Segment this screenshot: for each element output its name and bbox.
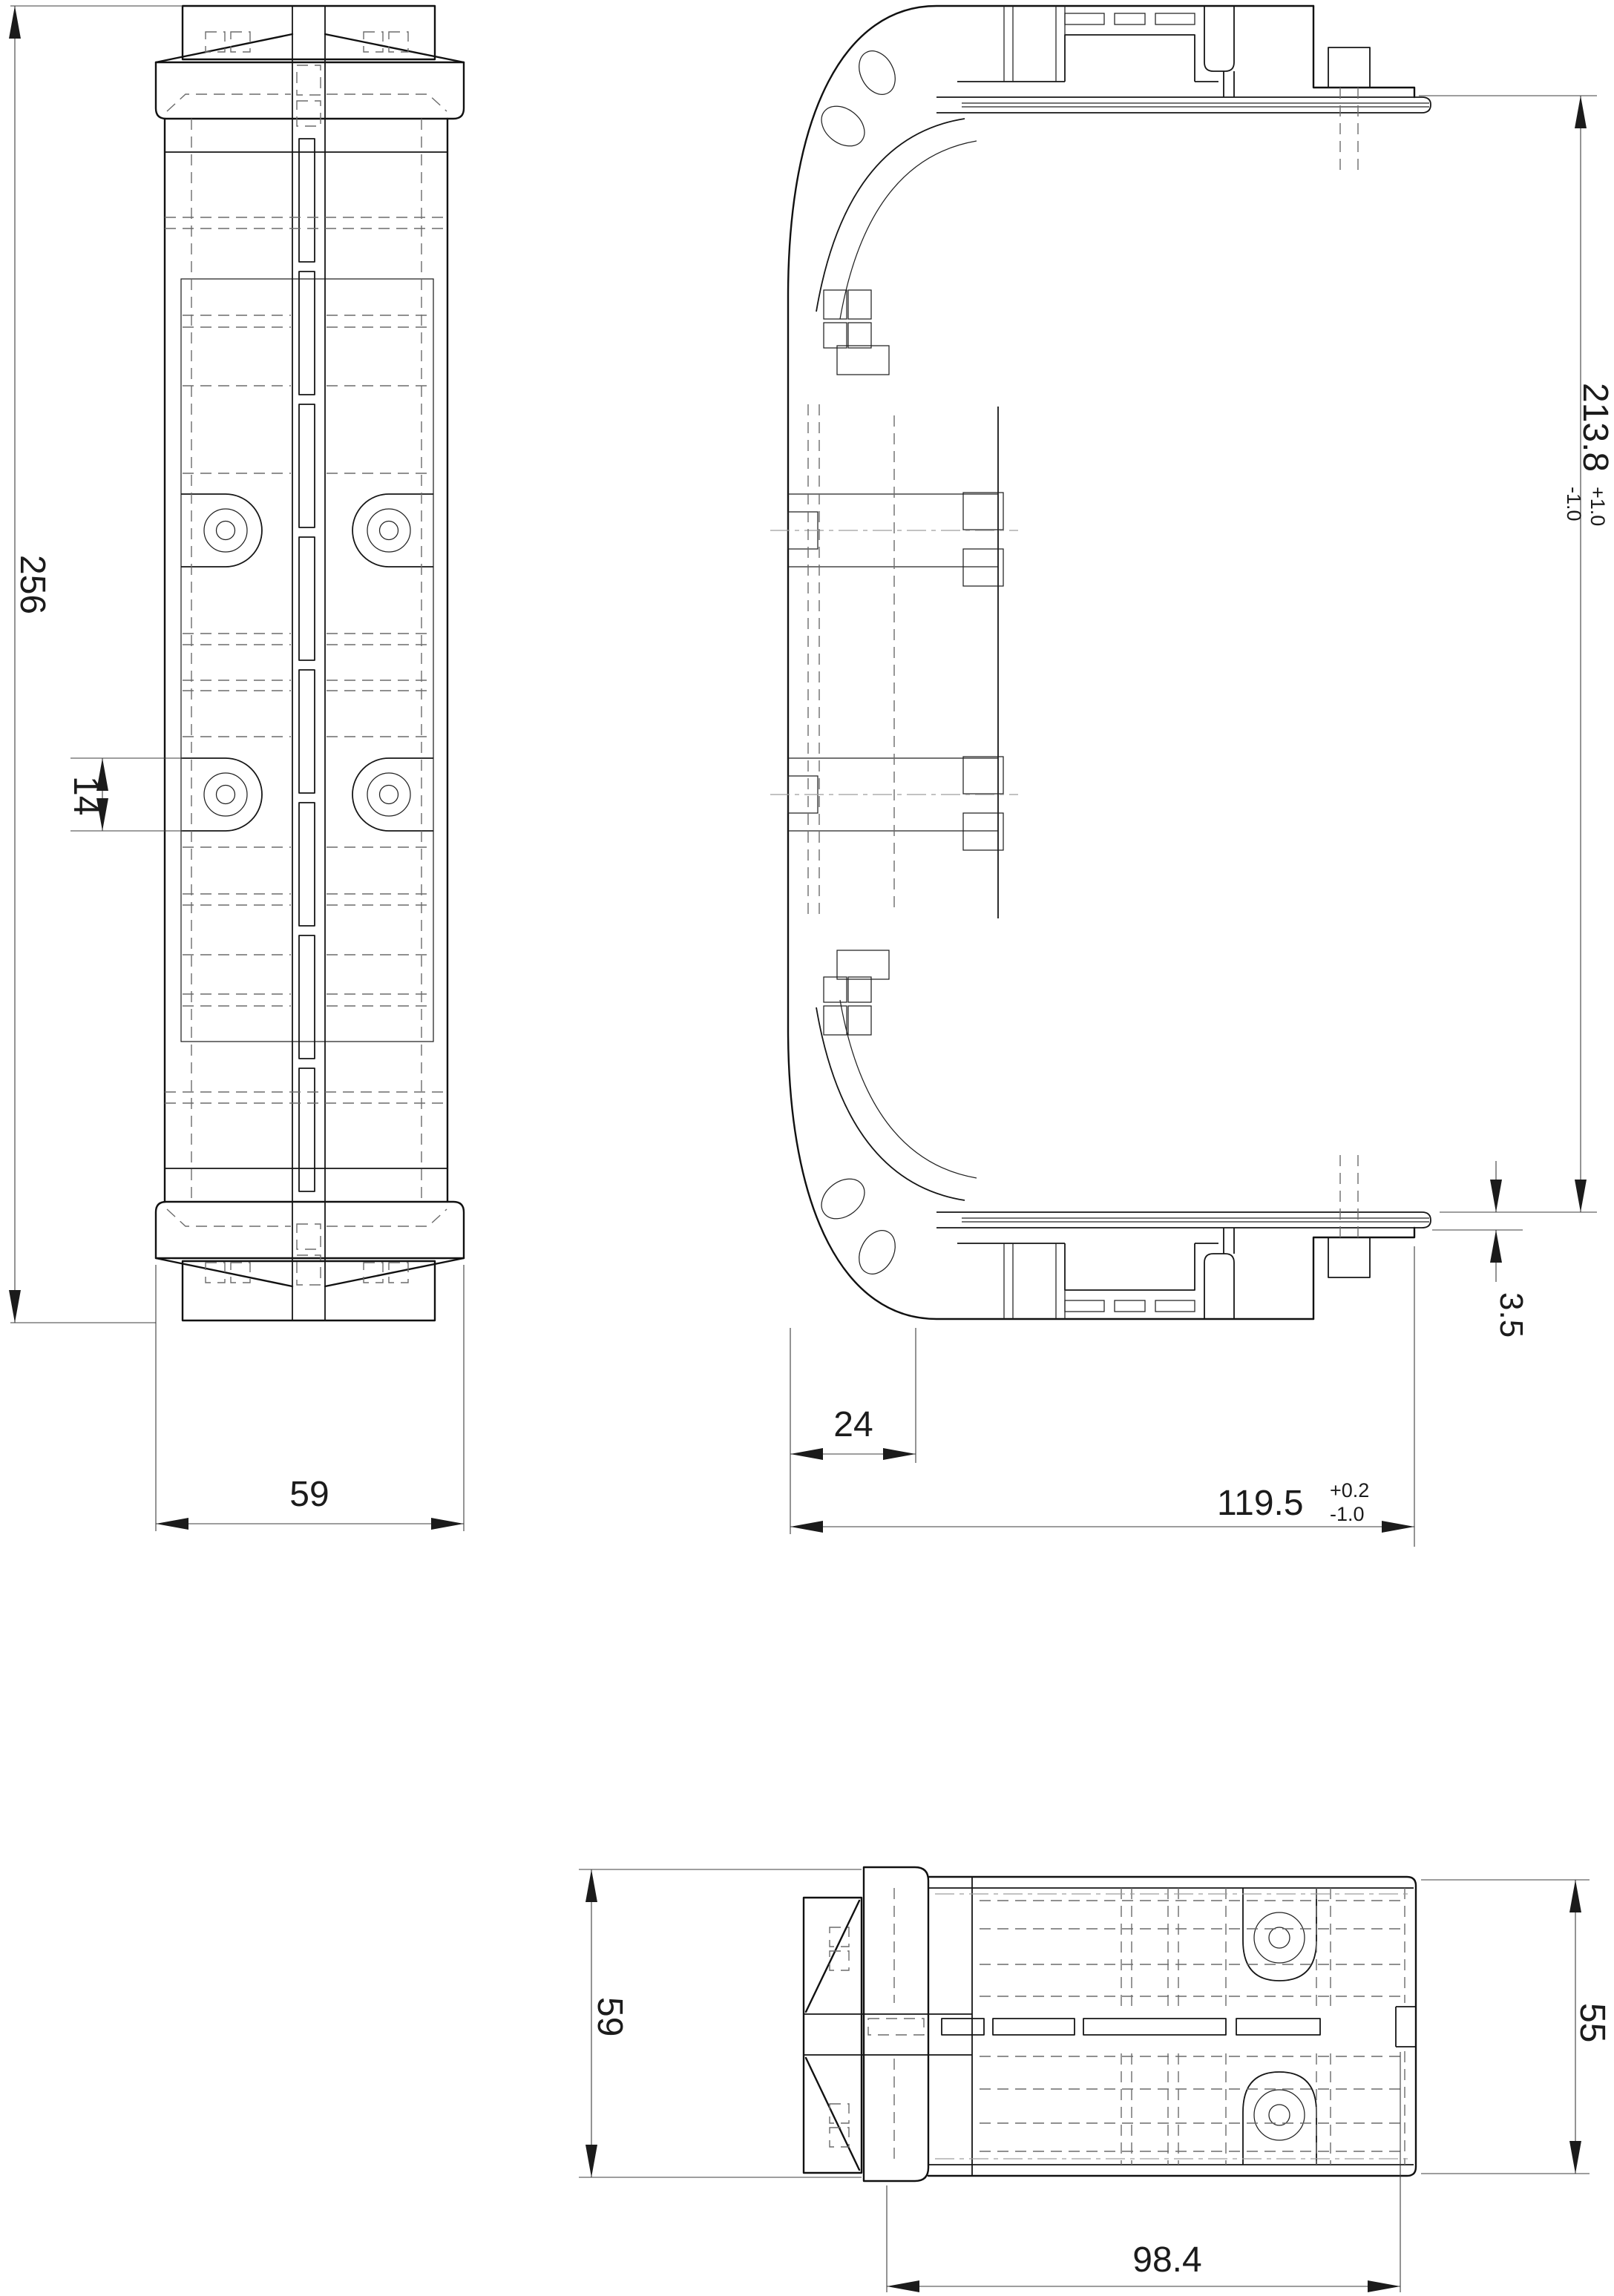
front-screw-tabs (181, 494, 433, 831)
front-center-column (292, 6, 325, 1320)
side-view (770, 6, 1431, 1319)
dim-arrow-icon (1575, 1180, 1587, 1212)
dim-arrow-icon (1569, 1880, 1581, 1912)
side-bottom-plate (936, 1212, 1431, 1228)
side-top-bar-details (957, 6, 1370, 97)
dim-side-overall-width-tol-plus: +0.2 (1330, 1479, 1369, 1501)
dim-front-height: 256 (9, 6, 183, 1323)
dim-bottom-depth: 59 (579, 1869, 862, 2177)
bottom-left-block (804, 1898, 862, 2173)
front-top-block (183, 6, 435, 59)
dim-bottom-right-depth-label: 55 (1572, 2003, 1612, 2042)
dim-arrow-icon (9, 1290, 21, 1323)
front-bottom-block (183, 1261, 435, 1320)
dim-side-plate-thickness-label: 3.5 (1493, 1292, 1529, 1338)
front-center-slots (299, 139, 315, 1191)
dim-arrow-icon (1490, 1180, 1502, 1212)
dim-front-width: 59 (156, 1265, 464, 1531)
drawing-sheet: 256 14 59 24 119.5 +0.2 -1.0 213.8 +1.0 (0, 0, 1614, 2296)
dim-arrow-icon (431, 1518, 464, 1530)
dim-side-plate-thickness: 3.5 (1432, 1161, 1529, 1338)
dim-side-overall-width-label: 119.5 (1217, 1484, 1304, 1523)
bottom-body-outline (928, 1877, 1416, 2176)
dim-side-inner-height-tol-plus: +1.0 (1587, 487, 1609, 526)
dim-arrow-icon (887, 2280, 919, 2292)
bottom-view (804, 1867, 1416, 2181)
side-outer-profile (788, 6, 1313, 1319)
side-top-plate-inner (962, 103, 1429, 107)
bottom-center-slots (942, 2019, 1320, 2035)
side-corner-holes (814, 45, 902, 1280)
dim-front-height-label: 256 (13, 555, 52, 614)
dim-arrow-icon (883, 1448, 916, 1460)
dim-arrow-icon (585, 2145, 597, 2177)
bottom-wedge-lines (806, 1901, 859, 2170)
side-top-plate (936, 97, 1431, 113)
dim-side-overall-width-tol-minus: -1.0 (1330, 1503, 1365, 1525)
dim-arrow-icon (585, 1869, 597, 1902)
front-bottom-wedge-lines (156, 1258, 464, 1286)
front-top-wedge-lines (156, 34, 464, 62)
dim-side-overall-width: 119.5 +0.2 -1.0 (790, 1246, 1414, 1547)
dim-arrow-icon (1569, 2141, 1581, 2174)
dim-bottom-width-label: 98.4 (1132, 2240, 1201, 2280)
front-top-band (156, 62, 464, 119)
bottom-body-edges (928, 1877, 1414, 2176)
side-right-steps (1313, 6, 1414, 1319)
dim-side-inner-height-label: 213.8 (1575, 383, 1614, 472)
dim-arrow-icon (790, 1448, 823, 1460)
bottom-cap-band (864, 1867, 928, 2181)
dim-arrow-icon (1382, 1521, 1414, 1533)
dim-side-flange-width: 24 (790, 1328, 916, 1534)
side-bottom-plate-inner (962, 1218, 1429, 1222)
dim-arrow-icon (9, 6, 21, 39)
dim-arrow-icon (156, 1518, 188, 1530)
side-arm-blocks (788, 290, 1003, 1035)
dim-arrow-icon (1490, 1230, 1502, 1263)
dim-arrow-icon (1368, 2280, 1400, 2292)
front-cap-hidden-details (167, 32, 447, 1285)
front-view (156, 6, 464, 1320)
side-inner-corner (816, 119, 998, 1200)
dim-side-inner-height-tol-minus: -1.0 (1563, 487, 1585, 522)
dim-side-inner-height: 213.8 +1.0 -1.0 (1419, 96, 1614, 1212)
dim-arrow-icon (790, 1521, 823, 1533)
dim-side-flange-width-label: 24 (833, 1405, 873, 1444)
dim-arrow-icon (1575, 96, 1587, 128)
dim-bottom-depth-label: 59 (590, 1997, 629, 2036)
dim-front-width-label: 59 (289, 1475, 329, 1514)
dim-front-tab-height-label: 14 (66, 776, 105, 815)
drawing-canvas: 256 14 59 24 119.5 +0.2 -1.0 213.8 +1.0 (0, 0, 1614, 2296)
dim-bottom-right-depth: 55 (1421, 1880, 1612, 2174)
side-bottom-bar-details (957, 1228, 1370, 1319)
dim-bottom-width: 98.4 (887, 2052, 1400, 2292)
bottom-tongue (1396, 2007, 1416, 2047)
side-hidden-lines (808, 88, 1358, 1237)
bottom-phantom-lines (935, 1894, 1410, 2159)
